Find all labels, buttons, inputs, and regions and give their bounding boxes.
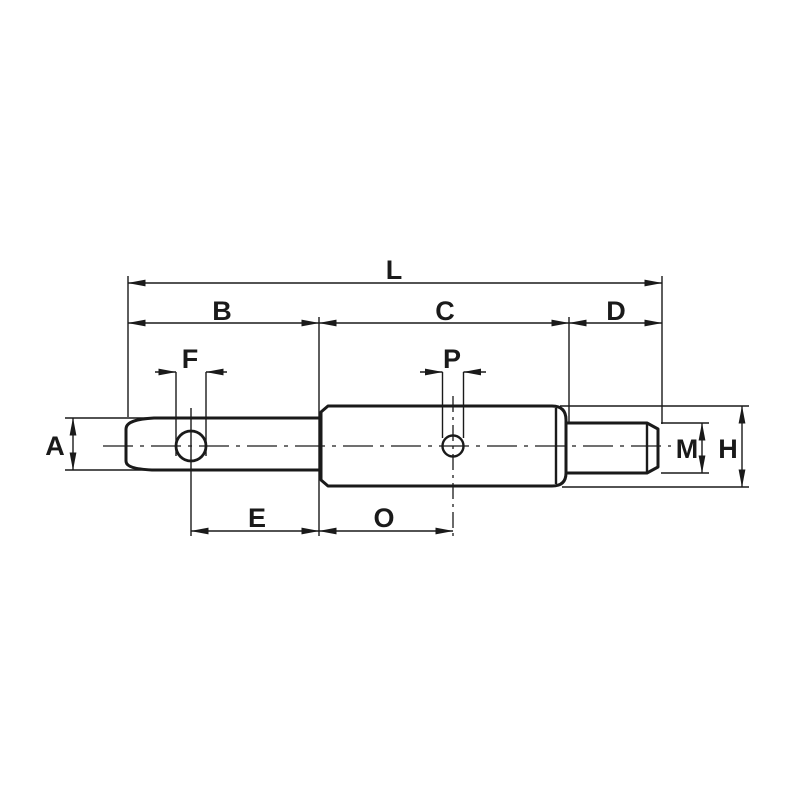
dim-label-A: A	[45, 431, 65, 461]
dim-label-E: E	[248, 503, 266, 533]
drawing-canvas: L B C D F P A E O M H	[0, 0, 800, 800]
dim-label-P: P	[443, 344, 461, 374]
technical-drawing: L B C D F P A E O M H	[0, 0, 800, 800]
dim-label-D: D	[606, 296, 626, 326]
dim-label-C: C	[435, 296, 455, 326]
dim-label-B: B	[212, 296, 232, 326]
dim-label-F: F	[182, 344, 199, 374]
dim-label-L: L	[386, 255, 403, 285]
dim-label-M: M	[676, 434, 699, 464]
dim-label-O: O	[373, 503, 394, 533]
background	[0, 0, 800, 800]
dim-label-H: H	[718, 434, 738, 464]
